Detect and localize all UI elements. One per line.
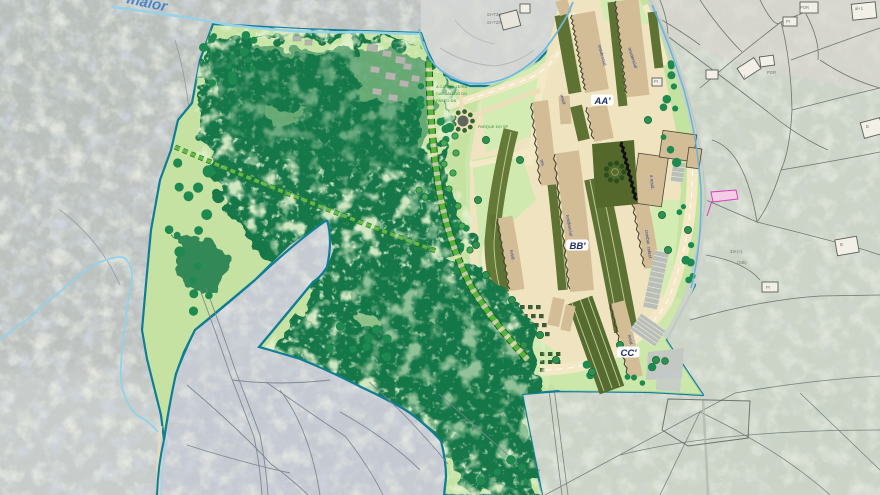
svg-text:CARBALLOS DO: CARBALLOS DO bbox=[436, 91, 467, 96]
svg-text:POR: POR bbox=[800, 5, 809, 10]
svg-text:I: I bbox=[744, 74, 745, 79]
svg-text:AA': AA' bbox=[594, 96, 612, 107]
svg-text:PARQUE DO SP: PARQUE DO SP bbox=[478, 124, 508, 129]
svg-text:33+(+): 33+(+) bbox=[730, 249, 743, 254]
svg-text:B: B bbox=[840, 242, 843, 247]
svg-text:POR: POR bbox=[767, 70, 776, 75]
svg-text:SI+TZA: SI+TZA bbox=[487, 20, 502, 25]
svg-text:al+1: al+1 bbox=[855, 6, 864, 11]
svg-text:PI: PI bbox=[766, 285, 770, 290]
svg-text:(33k): (33k) bbox=[737, 260, 747, 265]
svg-text:SENDEIRO: SENDEIRO bbox=[414, 246, 435, 251]
svg-text:PI: PI bbox=[786, 19, 790, 24]
svg-text:CC': CC' bbox=[621, 348, 638, 359]
svg-text:BB': BB' bbox=[570, 241, 587, 252]
svg-text:PASEO DA: PASEO DA bbox=[436, 98, 456, 103]
svg-text:PI: PI bbox=[654, 79, 658, 84]
svg-text:A CARBALLEIRA: A CARBALLEIRA bbox=[436, 84, 467, 89]
svg-text:SI+TZA: SI+TZA bbox=[487, 12, 502, 17]
svg-text:B: B bbox=[866, 124, 869, 129]
